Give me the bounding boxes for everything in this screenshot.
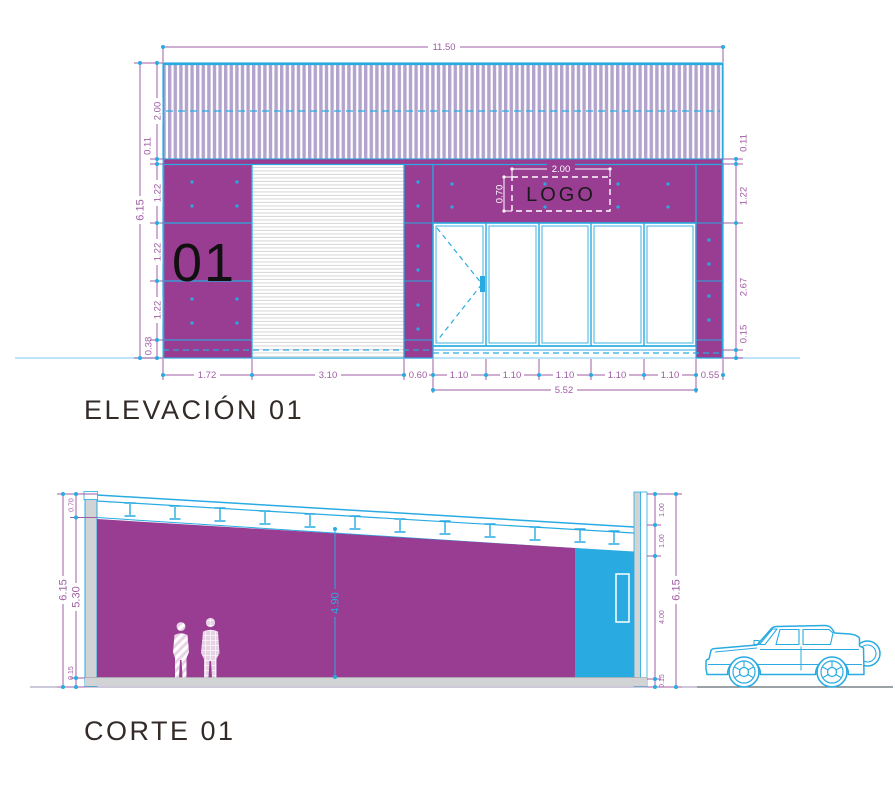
vehicle-suv [706, 626, 880, 688]
section-left-wall [85, 494, 97, 686]
dim-storefront-total: 5.52 [555, 385, 574, 396]
architectural-drawing-canvas: 01 LOG [0, 0, 895, 801]
dim-sill-right: 0.15 [739, 325, 750, 344]
dim-band-right: 1.22 [739, 187, 750, 206]
right-column [696, 165, 723, 359]
section-drawing: 6.15 5.30 0.70 0.15 4.90 1.00 1.00 4.00 [30, 492, 893, 747]
front-wheel [729, 657, 759, 687]
rear-wheel [817, 657, 847, 687]
section-building [84, 492, 647, 687]
roof-deck-top [97, 495, 634, 527]
elevation-drawing: 01 LOG [15, 42, 800, 426]
dim-roof-band: 2.00 [153, 102, 164, 121]
dim-pier: 0.60 [409, 370, 428, 381]
dim-bay1: 1.10 [450, 370, 469, 381]
section-title: CORTE 01 [84, 716, 236, 746]
dim-bay3: 1.10 [556, 370, 575, 381]
glass-panel [647, 226, 693, 343]
elevation-title: ELEVACIÓN 01 [84, 394, 304, 425]
dim-right-column: 0.55 [701, 370, 720, 381]
dim-section-total-right: 6.15 [671, 579, 683, 600]
dim-clear-height: 4.90 [330, 592, 342, 613]
left-base-band [163, 340, 252, 358]
roller-door [252, 165, 404, 359]
dim-row2: 1.22 [153, 243, 164, 262]
dim-door: 3.10 [319, 370, 338, 381]
dim-right-top: 1.00 [659, 503, 666, 517]
section-right-wall-inner [634, 492, 641, 686]
door-handle [480, 276, 485, 292]
glass-panel-door [436, 226, 483, 343]
pier-column [404, 165, 433, 359]
dim-base: 0.38 [144, 337, 155, 356]
dim-section-total-left: 6.15 [58, 579, 70, 600]
dim-right-mid: 1.00 [659, 534, 666, 548]
storefront-glazing [433, 223, 696, 350]
dim-total-height: 6.15 [135, 199, 147, 220]
panel-number-label: 01 [172, 233, 236, 293]
section-right-wall-outer [641, 492, 648, 686]
elevation-parapet-band [163, 63, 723, 159]
floor-slab [85, 678, 647, 686]
dim-right-lower: 4.00 [659, 610, 666, 624]
dim-flashing-left: 0.11 [143, 137, 154, 155]
logo-label: LOGO [526, 184, 596, 206]
dim-bay2: 1.10 [503, 370, 522, 381]
left-parapet-cap [84, 492, 98, 500]
signage-band: LOGO 2.00 0.70 [433, 164, 723, 224]
drawing-sheet: 01 LOG [0, 0, 895, 801]
glass-panel [489, 226, 536, 343]
dim-slab-left: 0.15 [68, 666, 75, 680]
dim-flashing-right: 0.11 [739, 134, 750, 152]
glass-panel [594, 226, 641, 343]
dim-left-panel: 1.72 [198, 370, 217, 381]
glass-panel [542, 226, 588, 343]
left-wall-panel: 01 [163, 165, 252, 359]
dim-slab-right: 0.15 [659, 674, 666, 688]
logo-width-dim: 2.00 [552, 164, 571, 175]
dim-glass-height: 2.67 [739, 278, 750, 297]
dim-roof-edge: 0.70 [69, 498, 76, 512]
dim-interior-height: 5.30 [71, 586, 83, 607]
dim-bay5: 1.10 [661, 370, 680, 381]
logo-height-dim: 0.70 [495, 185, 506, 204]
dim-row1: 1.22 [153, 184, 164, 203]
dim-bay4: 1.10 [608, 370, 627, 381]
flashing-strip [163, 159, 723, 165]
dim-row3: 1.22 [153, 301, 164, 320]
section-glazing-band [575, 548, 634, 678]
dim-total-width: 11.50 [432, 42, 455, 53]
